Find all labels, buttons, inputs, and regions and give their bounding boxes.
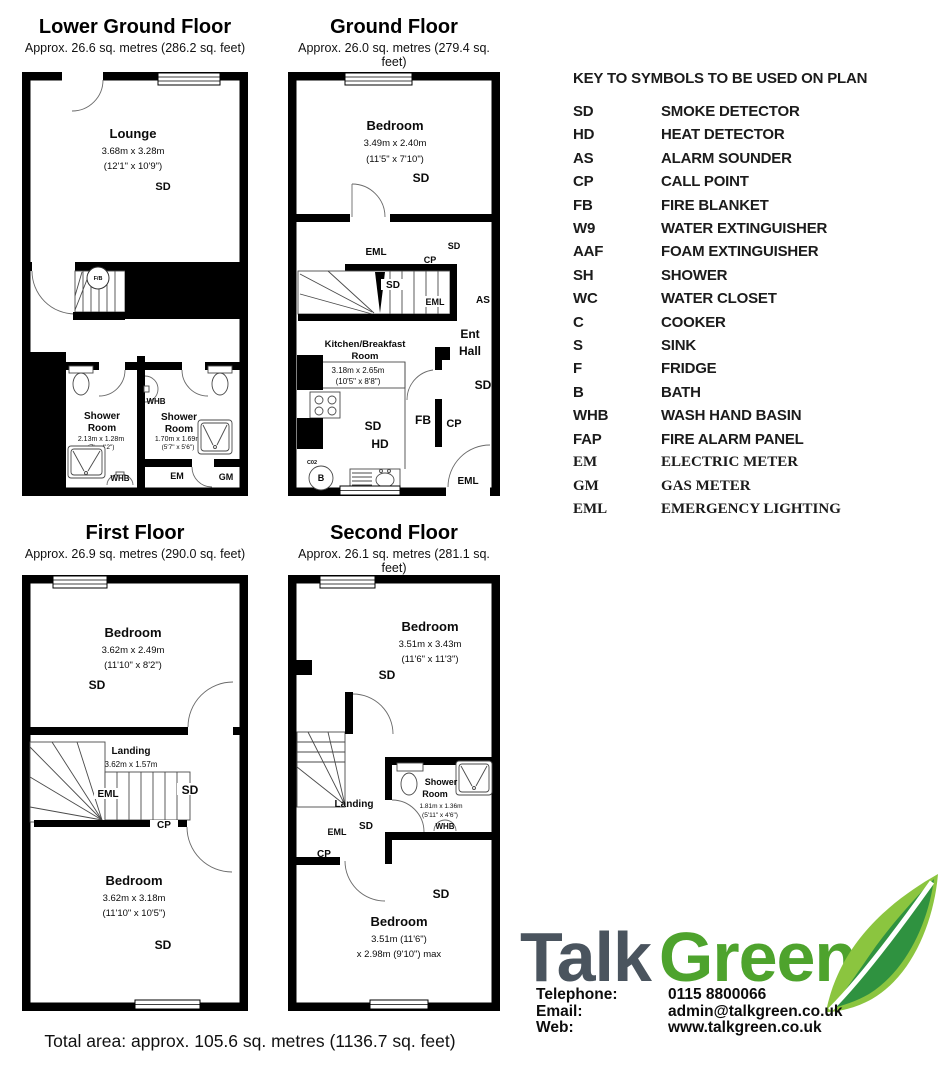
lgf-em-label: EM [170,471,184,481]
key-row-b: BBATH [573,381,918,404]
gf-corridor-sd: SD [448,241,461,251]
sf-bedroom2-dims-m: 3.51m (11'6") [371,934,427,945]
contact-block: Telephone: 0115 8800066 Email: admin@tal… [536,987,842,1037]
gf-kitchen-dims-ft: (10'5" x 8'8") [336,377,381,386]
lgf-title: Lower Ground Floor [22,16,248,38]
gf-hall: Hall [459,344,481,358]
ff-bedroom2-sd: SD [155,938,172,952]
gf-c02-label: C02 [307,460,317,466]
key-row-wc: WCWATER CLOSET [573,287,918,310]
ff-bedroom1-dims-m: 3.62m x 2.49m [102,645,165,656]
sf-landing-name: Landing [335,799,374,810]
lgf-void [125,262,244,319]
lgf-plan: Lounge 3.68m x 3.28m (12'1" x 10'9") SD … [22,72,248,496]
sf-area: Approx. 26.1 sq. metres (281.1 sq. feet) [288,547,500,575]
sf-landing-sd: SD [359,821,373,832]
talkgreen-logo: TalkGreen [520,922,856,994]
gf-bedroom-sd: SD [413,171,430,185]
lgf-toilet-right [208,366,232,395]
key-row-c: CCOOKER [573,311,918,334]
gf-title: Ground Floor [288,16,500,38]
gf-bedroom-dims-ft: (11'5" x 7'10") [366,154,424,165]
gf-kitchen-fb: FB [415,413,431,427]
sf-shower-name2: Room [422,789,448,799]
lgf-whb-left-label: WHB [110,474,129,483]
lgf-shower1-name1: Shower [84,411,120,422]
ff-window-top [53,576,107,588]
key-row-w9: W9WATER EXTINGUISHER [573,217,918,240]
gf-corridor-cp: CP [424,255,437,265]
sf-bedroom1-dims-ft: (11'6" x 11'3") [401,654,458,665]
lgf-fb-label: F/B [94,276,103,282]
gf-window-bottom [340,486,400,495]
key-title: KEY TO SYMBOLS TO BE USED ON PLAN [573,70,918,88]
gf-ent-sd: SD [475,378,492,392]
gf-eml-door: EML [457,476,478,487]
lgf-gm-label: GM [219,472,234,482]
sf-window-bottom [370,1000,428,1009]
lgf-toilet-left [69,366,93,395]
sf-stairs [297,732,345,807]
sf-bedroom2-sd: SD [433,887,450,901]
key-row-hd: HDHEAT DETECTOR [573,123,918,146]
lgf-shower2-dims-ft: (5'7" x 5'6") [162,444,195,451]
sf-bedroom2-name: Bedroom [370,914,427,929]
ff-landing-eml: EML [97,789,118,800]
sf-toilet [397,763,423,795]
key-row-whb: WHBWASH HAND BASIN [573,404,918,427]
total-area-text: Total area: approx. 105.6 sq. metres (11… [0,1031,500,1052]
ff-landing-sd: SD [182,783,199,797]
gf-kitchen-name2: Room [352,351,379,362]
key-row-em: EMELECTRIC METER [573,451,918,474]
lgf-lounge-name: Lounge [110,126,157,141]
gf-bedroom-name: Bedroom [366,118,423,133]
gf-header: Ground Floor Approx. 26.0 sq. metres (27… [288,16,500,69]
sf-bedroom2-dims-ft: x 2.98m (9'10") max [357,949,442,960]
gf-window-top [345,73,412,85]
ff-window-bottom [135,1000,200,1009]
key-row-eml: EMLEMERGENCY LIGHTING [573,498,918,521]
gf-stairs-sd: SD [386,280,400,291]
contact-row-telephone: Telephone: 0115 8800066 [536,987,842,1004]
lgf-shower2-name1: Shower [161,412,197,423]
gf-area: Approx. 26.0 sq. metres (279.4 sq. feet) [288,41,500,69]
gf-kitchen-hd: HD [371,437,389,451]
sf-window-top [320,576,375,588]
gf-kitchen-name1: Kitchen/Breakfast [325,339,407,350]
ff-header: First Floor Approx. 26.9 sq. metres (290… [22,522,248,561]
gf-ent: Ent [460,327,479,341]
contact-row-web: Web: www.talkgreen.co.uk [536,1020,842,1037]
gf-plan: Bedroom 3.49m x 2.40m (11'5" x 7'10") SD… [288,72,500,496]
key-row-s: SSINK [573,334,918,357]
ff-bedroom1-dims-ft: (11'10" x 8'2") [104,660,162,671]
key-row-sd: SDSMOKE DETECTOR [573,100,918,123]
key-panel: KEY TO SYMBOLS TO BE USED ON PLAN SDSMOK… [573,70,918,521]
ff-plan: Bedroom 3.62m x 2.49m (11'10" x 8'2") SD… [22,575,248,1011]
sf-title: Second Floor [288,522,500,544]
sf-bedroom1-name: Bedroom [401,619,458,634]
sf-shower-name1: Shower [425,777,458,787]
lgf-shower1-dims-m: 2.13m x 1.28m [78,436,124,443]
sf-shower-tray [456,761,492,795]
gf-boiler-b: B [318,473,325,483]
ff-area: Approx. 26.9 sq. metres (290.0 sq. feet) [22,547,248,561]
key-rows: SDSMOKE DETECTOR HDHEAT DETECTOR ASALARM… [573,100,918,521]
sf-whb-label: WHB [435,822,454,831]
lgf-shower2-dims-m: 1.70m x 1.69m [155,436,201,443]
lgf-shower-tray-right [198,420,232,454]
sf-bedroom1-sd: SD [379,668,396,682]
gf-kitchen-dims-m: 3.18m x 2.65m [332,366,385,375]
gf-stairs [298,271,450,314]
ff-bedroom2-dims-m: 3.62m x 3.18m [103,893,166,904]
floorplan-sheet: Lower Ground Floor Approx. 26.6 sq. metr… [0,0,943,1080]
lgf-whb-mid-label: WHB [146,397,165,406]
key-row-cp: CPCALL POINT [573,170,918,193]
sf-shower-dims-ft: (5'11" x 4'6") [422,812,458,819]
lgf-shower-tray-left [68,446,105,478]
key-row-gm: GMGAS METER [573,475,918,498]
key-row-as: ASALARM SOUNDER [573,147,918,170]
lgf-shower2-name2: Room [165,424,193,435]
gf-kitchen-cp: CP [446,418,461,430]
gf-stairs-eml: EML [426,297,446,307]
ff-bedroom2-dims-ft: (11'10" x 10'5") [102,908,165,919]
lgf-lounge-sd: SD [155,181,170,193]
ff-landing-dims-m: 3.62m x 1.57m [105,760,158,769]
contact-row-email: Email: admin@talkgreen.co.uk [536,1004,842,1021]
sf-header: Second Floor Approx. 26.1 sq. metres (28… [288,522,500,575]
ff-title: First Floor [22,522,248,544]
lgf-shower1-name2: Room [88,423,116,434]
key-row-f: FFRIDGE [573,357,918,380]
sf-landing-eml: EML [328,827,348,837]
ff-bedroom1-sd: SD [89,678,106,692]
key-row-aaf: AAFFOAM EXTINGUISHER [573,240,918,263]
lgf-window-top [158,73,220,85]
sf-shower-dims-m: 1.81m x 1.36m [420,803,463,810]
ff-landing-name: Landing [112,746,151,757]
lgf-lounge-dims-m: 3.68m x 3.28m [102,146,165,157]
ff-stairs [30,742,190,822]
key-row-sh: SHSHOWER [573,264,918,287]
sf-bedroom1-dims-m: 3.51m x 3.43m [399,639,462,650]
logo-talk-text: Talk [520,918,651,996]
lgf-solid-mass [26,352,66,492]
key-row-fb: FBFIRE BLANKET [573,194,918,217]
sf-plan: Bedroom 3.51m x 3.43m (11'6" x 11'3") SD… [288,575,500,1011]
gf-bedroom-dims-m: 3.49m x 2.40m [364,138,427,149]
key-row-fap: FAPFIRE ALARM PANEL [573,428,918,451]
ff-bedroom1-name: Bedroom [104,625,161,640]
gf-kitchen-sd: SD [365,419,382,433]
lgf-lounge-dims-ft: (12'1" x 10'9") [104,161,162,172]
gf-as-label: AS [476,295,490,306]
gf-hob [310,392,340,418]
lgf-header: Lower Ground Floor Approx. 26.6 sq. metr… [22,16,248,55]
ff-bedroom2-name: Bedroom [105,873,162,888]
ff-landing-cp: CP [157,820,171,831]
lgf-area: Approx. 26.6 sq. metres (286.2 sq. feet) [22,41,248,55]
gf-corridor-eml: EML [365,247,386,258]
